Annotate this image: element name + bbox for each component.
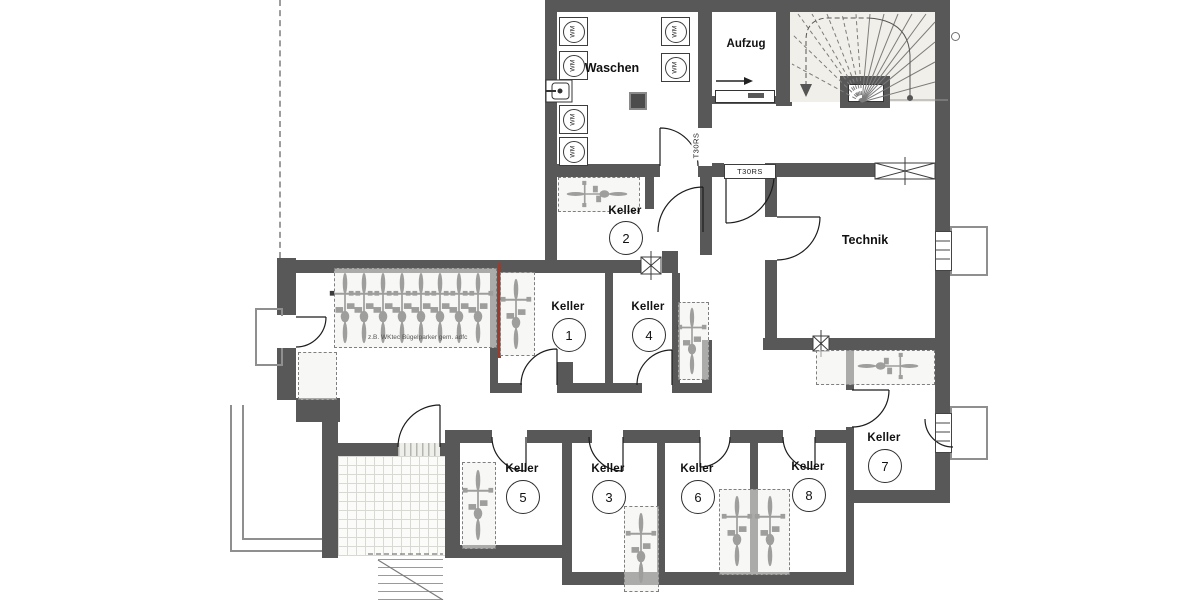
bike-zone bbox=[678, 302, 709, 380]
bike-parking-note: z.B. WKtec Bügelparker gem. adfc bbox=[368, 334, 467, 341]
room-label-keller-4: Keller bbox=[613, 301, 683, 313]
floor-drain bbox=[629, 92, 647, 110]
window-opening bbox=[935, 413, 952, 453]
fire-door-label: T30RS bbox=[724, 164, 776, 179]
bike-zone bbox=[624, 506, 659, 592]
exterior-stair bbox=[378, 558, 443, 600]
room-label-keller-8: Keller bbox=[773, 461, 843, 473]
room-number-keller-7: 7 bbox=[868, 449, 902, 483]
wall-segment bbox=[774, 163, 875, 177]
wall-segment bbox=[672, 383, 712, 393]
wall-segment bbox=[322, 398, 338, 558]
bike-zone bbox=[462, 462, 496, 549]
retaining-wall-outline bbox=[242, 405, 322, 540]
wall-segment bbox=[562, 443, 572, 585]
room-number-keller-3: 3 bbox=[592, 480, 626, 514]
exterior-court-tiles bbox=[338, 456, 445, 556]
wall-segment bbox=[277, 258, 296, 315]
room-label-technik: Technik bbox=[825, 233, 905, 247]
bike-zone bbox=[719, 489, 790, 575]
wall-segment bbox=[846, 490, 950, 503]
room-label-keller-3: Keller bbox=[573, 463, 643, 475]
room-number-keller-8: 8 bbox=[792, 478, 826, 512]
washing-machine: WM bbox=[661, 53, 690, 82]
site-boundary-line bbox=[279, 0, 281, 258]
room-number-keller-6: 6 bbox=[681, 480, 715, 514]
door-threshold bbox=[398, 443, 440, 456]
light-well-box bbox=[950, 406, 988, 460]
wall-segment bbox=[557, 383, 642, 393]
room-label-keller-7: Keller bbox=[849, 432, 919, 444]
elevator-arrow-icon bbox=[716, 77, 753, 85]
room-number-keller-2: 2 bbox=[609, 221, 643, 255]
floor-plan: WM WM WM WM WM WM Waschen Aufzug Technik… bbox=[0, 0, 1200, 600]
wall-segment bbox=[545, 0, 950, 12]
wall-segment bbox=[623, 430, 700, 443]
wall-segment bbox=[545, 0, 557, 273]
washing-machine: WM bbox=[661, 17, 690, 46]
wall-segment bbox=[490, 383, 522, 393]
bike-zone bbox=[816, 350, 935, 385]
wall-segment bbox=[662, 251, 678, 273]
elevator-door bbox=[715, 90, 775, 103]
bike-zone bbox=[500, 272, 535, 356]
elevator-door-leaf bbox=[748, 93, 764, 98]
room-label-keller-6: Keller bbox=[662, 463, 732, 475]
stair-landing-inner bbox=[848, 84, 884, 102]
wall-segment bbox=[730, 430, 783, 443]
washing-machine: WM bbox=[559, 137, 588, 166]
light-well-box bbox=[950, 226, 988, 276]
wall-segment bbox=[698, 0, 712, 130]
washing-machine: WM bbox=[559, 105, 588, 134]
bike-zone bbox=[298, 352, 337, 400]
wall-segment bbox=[763, 338, 813, 350]
room-label-waschen: Waschen bbox=[572, 61, 652, 75]
wall-segment bbox=[815, 430, 852, 443]
wall-segment bbox=[765, 260, 777, 350]
room-label-aufzug: Aufzug bbox=[706, 38, 786, 50]
room-label-keller-1: Keller bbox=[533, 301, 603, 313]
survey-marker bbox=[951, 32, 960, 41]
pillar bbox=[557, 362, 573, 385]
wall-segment bbox=[330, 443, 398, 456]
fire-door-label-vertical: T30RS bbox=[691, 131, 700, 161]
room-label-keller-2: Keller bbox=[590, 205, 660, 217]
door-opening bbox=[277, 316, 296, 348]
wall-segment bbox=[846, 490, 854, 585]
wall-segment bbox=[527, 430, 592, 443]
wall-segment bbox=[562, 572, 852, 585]
room-label-keller-5: Keller bbox=[487, 463, 557, 475]
wall-segment bbox=[445, 430, 460, 558]
room-number-keller-5: 5 bbox=[506, 480, 540, 514]
room-number-keller-4: 4 bbox=[632, 318, 666, 352]
wall-segment bbox=[605, 273, 613, 393]
window-opening bbox=[935, 231, 952, 271]
washing-machine: WM bbox=[559, 17, 588, 46]
room-number-keller-1: 1 bbox=[552, 318, 586, 352]
wall-segment bbox=[700, 177, 712, 255]
